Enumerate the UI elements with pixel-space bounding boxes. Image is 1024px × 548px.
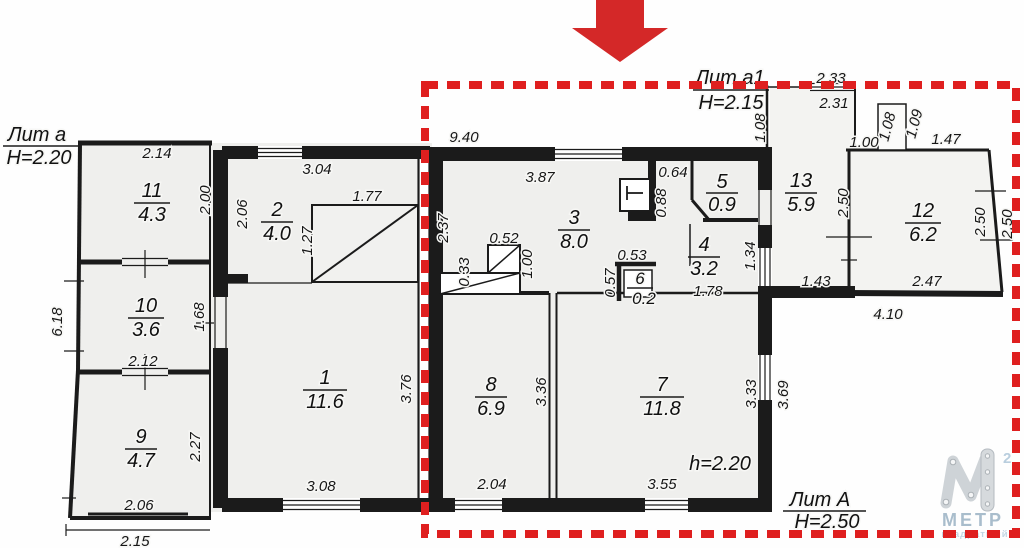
stair-symbol (312, 205, 418, 282)
dim-room12-right: 2.50 (972, 207, 989, 238)
dim-room6-width: 0.53 (617, 247, 647, 264)
room-3-number: 3 (568, 207, 579, 229)
dim-boiler-height: 0.88 (653, 188, 670, 218)
boiler-symbol (620, 179, 650, 211)
dim-room12-top-right: 1.47 (931, 131, 961, 148)
dim-room7-height: 3.33 (743, 379, 760, 409)
dim-stove-left: 0.33 (456, 257, 473, 287)
dim-room11-width: 2.14 (141, 145, 171, 162)
dim-room6-height: 0.57 (602, 268, 619, 298)
dim-room3-height: 2.37 (435, 213, 452, 244)
main-height: Н=2.50 (794, 511, 859, 533)
room-4-number: 4 (698, 234, 709, 256)
annex-left-label: Лит а (6, 124, 66, 146)
dim-room8-width: 2.04 (476, 476, 506, 493)
floorplan-page: 1 11.6 2 4.0 3 8.0 4 3.2 5 0.9 6 0.2 7 1… (0, 0, 1024, 548)
room-2-number: 2 (270, 199, 282, 221)
dim-room3-width: 3.87 (525, 169, 555, 186)
room-8-area: 6.9 (477, 398, 505, 420)
room-13-number: 13 (790, 170, 812, 192)
room-1-number: 1 (319, 367, 330, 389)
room-10-number: 10 (135, 295, 157, 317)
dim-room2-height: 2.06 (234, 199, 251, 230)
dim-stove-top: 0.52 (489, 230, 519, 247)
room-1-area: 11.6 (306, 391, 344, 413)
dim-room13-top: 2.31 (818, 95, 848, 112)
dim-room8-height: 3.36 (533, 377, 550, 407)
room-12-number: 12 (912, 200, 934, 222)
dim-room7-width: 3.55 (647, 476, 677, 493)
room-11-number: 11 (142, 180, 163, 202)
metr-m-mark (946, 459, 985, 503)
room-3-area: 8.0 (560, 231, 588, 253)
dim-room12-bottom: 2.47 (911, 273, 942, 290)
dim-annex-base-width: 2.15 (119, 533, 150, 548)
dim-stair-width: 1.77 (352, 188, 382, 205)
room-4-area: 3.2 (690, 258, 718, 280)
room-8-number: 8 (485, 374, 496, 396)
room-9-area: 4.7 (127, 450, 156, 472)
dim-room4-width: 1.78 (693, 283, 723, 300)
room-2-area: 4.0 (263, 223, 291, 245)
dim-room10-height: 1.68 (191, 302, 208, 332)
room-6-number: 6 (635, 269, 645, 288)
dim-boiler-width: 0.64 (658, 164, 687, 181)
dim-main-top-total: 9.40 (449, 129, 479, 146)
dim-stair-height: 1.27 (299, 226, 316, 256)
room-5-area: 0.9 (708, 194, 736, 216)
dim-room1-width: 3.08 (306, 478, 336, 495)
dim-right-total: 4.10 (873, 306, 903, 323)
annex-top-label: Лит а1 (693, 67, 764, 89)
room-5-number: 5 (716, 171, 728, 193)
room-11-area: 4.3 (138, 204, 166, 226)
red-arrow-marker (572, 0, 668, 62)
logo-superscript: 2 (1003, 450, 1011, 467)
logo-name: МЕТР (942, 510, 1004, 530)
dim-room12-left: 2.50 (835, 188, 852, 219)
room-9-number: 9 (135, 426, 146, 448)
room-12-area: 6.2 (909, 224, 937, 246)
main-label: Лит А (788, 489, 850, 511)
ceiling-height-note: h=2.20 (689, 453, 751, 475)
floorplan-canvas: 1 11.6 2 4.0 3 8.0 4 3.2 5 0.9 6 0.2 7 1… (0, 0, 1024, 548)
dim-room11-height: 2.00 (197, 185, 214, 216)
dim-room9-height: 2.27 (187, 432, 204, 463)
dim-room13-left: 1.08 (752, 113, 769, 143)
dim-room9-width: 2.06 (123, 497, 154, 514)
dim-room2-width: 3.04 (302, 161, 331, 178)
dim-annex-left-total: 6.18 (49, 307, 66, 337)
dim-room1-height: 3.76 (398, 374, 415, 404)
room-6-area: 0.2 (632, 289, 656, 308)
room-13-area: 5.9 (787, 194, 815, 216)
annex-left-height: Н=2.20 (6, 147, 71, 169)
room-7-number: 7 (656, 374, 668, 396)
dim-stove-right: 1.00 (519, 249, 536, 279)
dim-room10-width: 2.12 (127, 353, 158, 370)
dim-room12-top-left: 1.00 (849, 134, 879, 151)
dim-main-right-wall: 3.69 (775, 380, 792, 410)
metr-logo: 2 МЕТР квадратный (941, 449, 1011, 540)
room-7-area: 11.8 (643, 398, 680, 420)
room-10-area: 3.6 (132, 319, 161, 341)
annex-top-height: Н=2.15 (698, 92, 764, 114)
dim-room4-passage: 1.34 (742, 241, 759, 270)
dim-right-passage: 1.43 (801, 273, 831, 290)
